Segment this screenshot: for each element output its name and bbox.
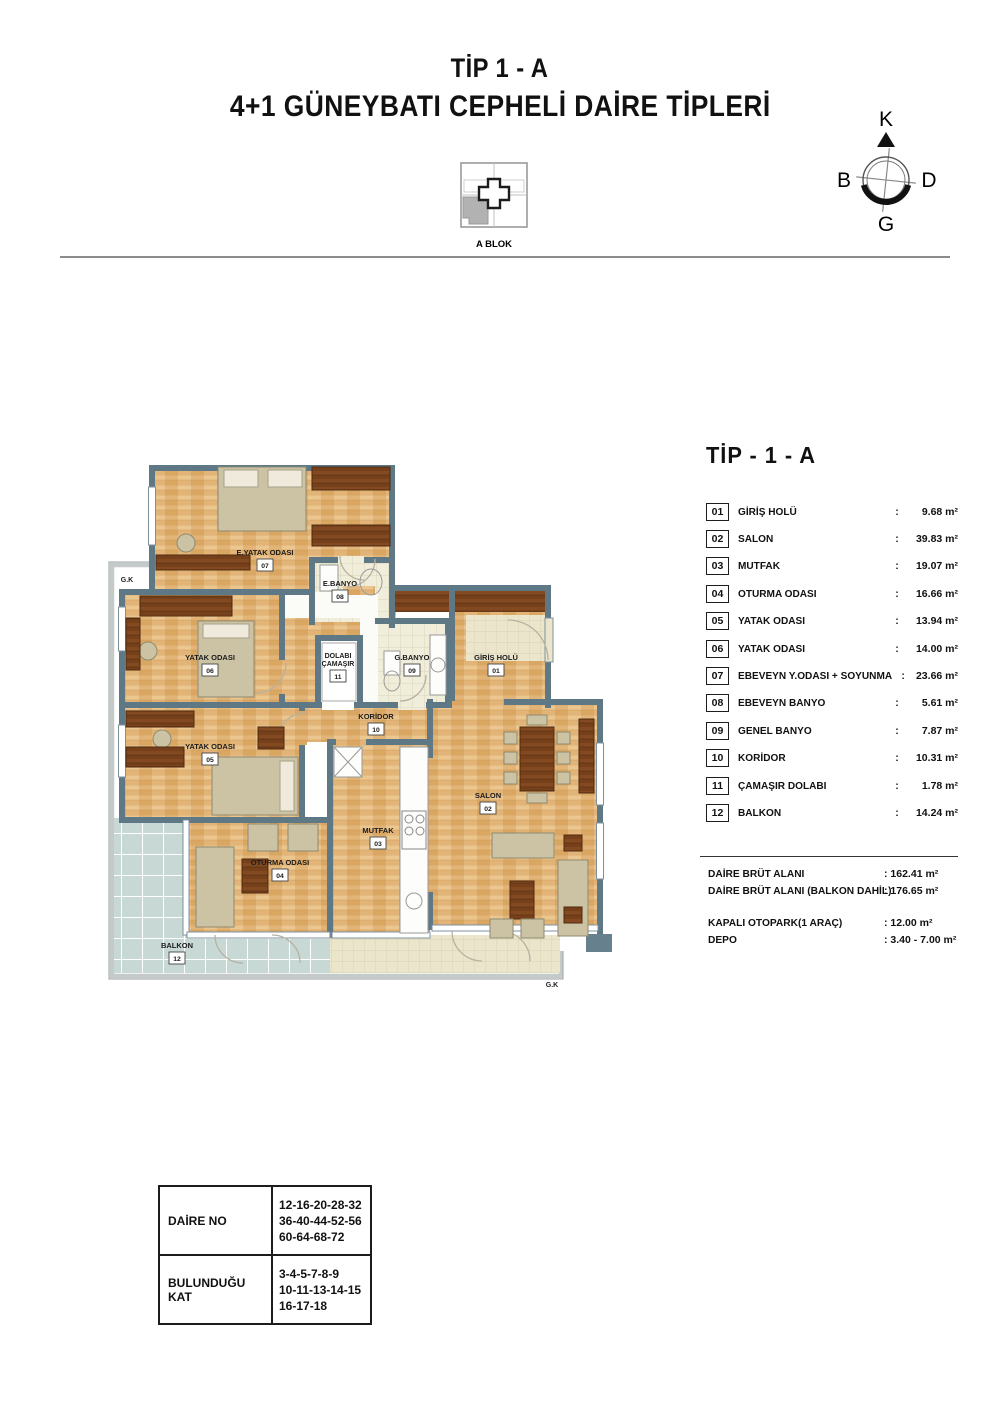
daire-no-label: DAİRE NO bbox=[159, 1186, 272, 1255]
room-number-box: 07 bbox=[706, 667, 729, 685]
legend-area-value: 16.66 m² bbox=[902, 588, 958, 600]
gk-label-bottom: G.K bbox=[546, 982, 558, 989]
legend-title: TİP - 1 - A bbox=[706, 442, 816, 469]
legend-area-value: 39.83 m² bbox=[902, 533, 958, 545]
legend-room-label: MUTFAK bbox=[738, 560, 886, 572]
legend-room-label: GİRİŞ HOLÜ bbox=[738, 506, 886, 518]
svg-text:12: 12 bbox=[173, 956, 181, 963]
svg-text:07: 07 bbox=[261, 563, 269, 570]
compass-west-label: B bbox=[837, 169, 851, 192]
room-label: SALON bbox=[475, 791, 501, 800]
compass-south-label: G bbox=[878, 213, 894, 235]
legend-row: 08EBEVEYN BANYO:5.61 m² bbox=[706, 690, 958, 717]
legend-summary: DAİRE BRÜT ALANI: 162.41 m² DAİRE BRÜT A… bbox=[708, 866, 960, 900]
room-number-box: 12 bbox=[706, 804, 729, 822]
legend-row: 02SALON:39.83 m² bbox=[706, 525, 958, 552]
legend-extras: KAPALI OTOPARK(1 ARAÇ): 12.00 m² DEPO: 3… bbox=[708, 915, 960, 949]
room-label: DOLABI bbox=[325, 653, 352, 660]
legend-row: 11ÇAMAŞIR DOLABI:1.78 m² bbox=[706, 772, 958, 799]
room-number-box: 10 bbox=[706, 749, 729, 767]
room-label: E.BANYO bbox=[323, 579, 357, 588]
legend-area-value: 9.68 m² bbox=[902, 506, 958, 518]
floor-plan: E.YATAK ODASI E.BANYO YATAK ODASI DOLABI… bbox=[100, 455, 680, 1005]
table-row: DAİRE NO 12-16-20-28-32 36-40-44-52-56 6… bbox=[159, 1186, 371, 1255]
title-line1: TİP 1 - A bbox=[451, 55, 549, 82]
room-label: MUTFAK bbox=[362, 826, 394, 835]
legend-area-value: 7.87 m² bbox=[902, 725, 958, 737]
room-number-box: 03 bbox=[706, 557, 729, 575]
room-number-box: 05 bbox=[706, 612, 729, 630]
legend-area-value: 19.07 m² bbox=[902, 560, 958, 572]
legend-room-label: SALON bbox=[738, 533, 886, 545]
legend-room-label: ÇAMAŞIR DOLABI bbox=[738, 780, 886, 792]
legend-room-label: GENEL BANYO bbox=[738, 725, 886, 737]
svg-text:10: 10 bbox=[372, 727, 380, 734]
summary-value: : 176.65 m² bbox=[884, 883, 938, 900]
svg-text:02: 02 bbox=[484, 806, 492, 813]
svg-text:06: 06 bbox=[206, 668, 214, 675]
compass-south-arc bbox=[864, 185, 908, 202]
room-label: E.YATAK ODASI bbox=[237, 548, 294, 557]
svg-text:08: 08 bbox=[336, 594, 344, 601]
top-divider-line bbox=[60, 256, 950, 258]
legend-room-label: YATAK ODASI bbox=[738, 643, 886, 655]
legend-room-label: OTURMA ODASI bbox=[738, 588, 886, 600]
legend-row: 09GENEL BANYO:7.87 m² bbox=[706, 717, 958, 744]
unit-info-table: DAİRE NO 12-16-20-28-32 36-40-44-52-56 6… bbox=[158, 1185, 372, 1325]
summary-value: : 162.41 m² bbox=[884, 866, 938, 883]
legend-area-value: 1.78 m² bbox=[902, 780, 958, 792]
corner-block bbox=[586, 934, 612, 952]
compass-rose: K B D G bbox=[826, 100, 946, 235]
legend-row: 10KORİDOR:10.31 m² bbox=[706, 745, 958, 772]
summary-row: DAİRE BRÜT ALANI: 162.41 m² bbox=[708, 866, 960, 883]
room-number-box: 11 bbox=[706, 777, 729, 795]
legend-row: 05YATAK ODASI:13.94 m² bbox=[706, 608, 958, 635]
extras-value: : 3.40 - 7.00 m² bbox=[884, 932, 956, 949]
room-label: BALKON bbox=[161, 941, 193, 950]
bulundugu-kat-label: BULUNDUĞU KAT bbox=[159, 1255, 272, 1324]
svg-text:04: 04 bbox=[276, 873, 284, 880]
legend-room-label: KORİDOR bbox=[738, 752, 886, 764]
legend-summary-divider bbox=[700, 856, 958, 857]
legend-row: 12BALKON:14.24 m² bbox=[706, 799, 958, 826]
legend-room-label: BALKON bbox=[738, 807, 886, 819]
bulundugu-kat-values: 3-4-5-7-8-9 10-11-13-14-15 16-17-18 bbox=[272, 1255, 371, 1324]
legend-row: 01GİRİŞ HOLÜ:9.68 m² bbox=[706, 498, 958, 525]
legend-area-value: 10.31 m² bbox=[902, 752, 958, 764]
legend-row: 06YATAK ODASI:14.00 m² bbox=[706, 635, 958, 662]
legend-area-value: 5.61 m² bbox=[902, 697, 958, 709]
svg-text:09: 09 bbox=[408, 668, 416, 675]
svg-text:05: 05 bbox=[206, 757, 214, 764]
legend-area-value: 14.00 m² bbox=[902, 643, 958, 655]
legend-room-label: EBEVEYN BANYO bbox=[738, 697, 886, 709]
room-number-box: 04 bbox=[706, 585, 729, 603]
compass-arrow-icon bbox=[877, 132, 895, 147]
compass-east-label: D bbox=[921, 169, 936, 192]
legend-area-value: 13.94 m² bbox=[902, 615, 958, 627]
svg-text:11: 11 bbox=[334, 674, 341, 681]
room-label: GİRİŞ HOLÜ bbox=[474, 653, 518, 662]
room-label: YATAK ODASI bbox=[185, 653, 235, 662]
legend-row: 03MUTFAK:19.07 m² bbox=[706, 553, 958, 580]
gk-label-top: G.K bbox=[121, 577, 133, 584]
legend-row: 04OTURMA ODASI:16.66 m² bbox=[706, 580, 958, 607]
room-label: G.BANYO bbox=[394, 653, 429, 662]
room-label: YATAK ODASI bbox=[185, 742, 235, 751]
legend-row: 07EBEVEYN Y.ODASI + SOYUNMA:23.66 m² bbox=[706, 662, 958, 689]
title-line2: 4+1 GÜNEYBATI CEPHELİ DAİRE TİPLERİ bbox=[230, 92, 771, 122]
table-row: BULUNDUĞU KAT 3-4-5-7-8-9 10-11-13-14-15… bbox=[159, 1255, 371, 1324]
legend-room-label: YATAK ODASI bbox=[738, 615, 886, 627]
legend-area-value: 23.66 m² bbox=[908, 670, 958, 682]
room-number-box: 01 bbox=[706, 503, 729, 521]
svg-text:03: 03 bbox=[374, 841, 382, 848]
extras-value: : 12.00 m² bbox=[884, 915, 932, 932]
extras-row: KAPALI OTOPARK(1 ARAÇ): 12.00 m² bbox=[708, 915, 960, 932]
room-number-box: 06 bbox=[706, 640, 729, 658]
block-key-label: A BLOK bbox=[476, 239, 512, 250]
room-number-box: 02 bbox=[706, 530, 729, 548]
legend-area-value: 14.24 m² bbox=[902, 807, 958, 819]
room-label: OTURMA ODASI bbox=[251, 858, 309, 867]
compass-north-label: K bbox=[879, 108, 893, 131]
block-key-plan: A BLOK bbox=[444, 158, 544, 253]
room-label: ÇAMAŞIR bbox=[322, 661, 355, 668]
legend-room-label: EBEVEYN Y.ODASI + SOYUNMA bbox=[738, 670, 892, 682]
room-number-box: 09 bbox=[706, 722, 729, 740]
room-label: KORİDOR bbox=[358, 712, 394, 721]
room-number-box: 08 bbox=[706, 694, 729, 712]
svg-text:01: 01 bbox=[492, 668, 500, 675]
daire-no-values: 12-16-20-28-32 36-40-44-52-56 60-64-68-7… bbox=[272, 1186, 371, 1255]
extras-row: DEPO: 3.40 - 7.00 m² bbox=[708, 932, 960, 949]
legend-list: 01GİRİŞ HOLÜ:9.68 m² 02SALON:39.83 m² 03… bbox=[706, 498, 958, 827]
summary-row: DAİRE BRÜT ALANI (BALKON DAHİL): 176.65 … bbox=[708, 883, 960, 900]
